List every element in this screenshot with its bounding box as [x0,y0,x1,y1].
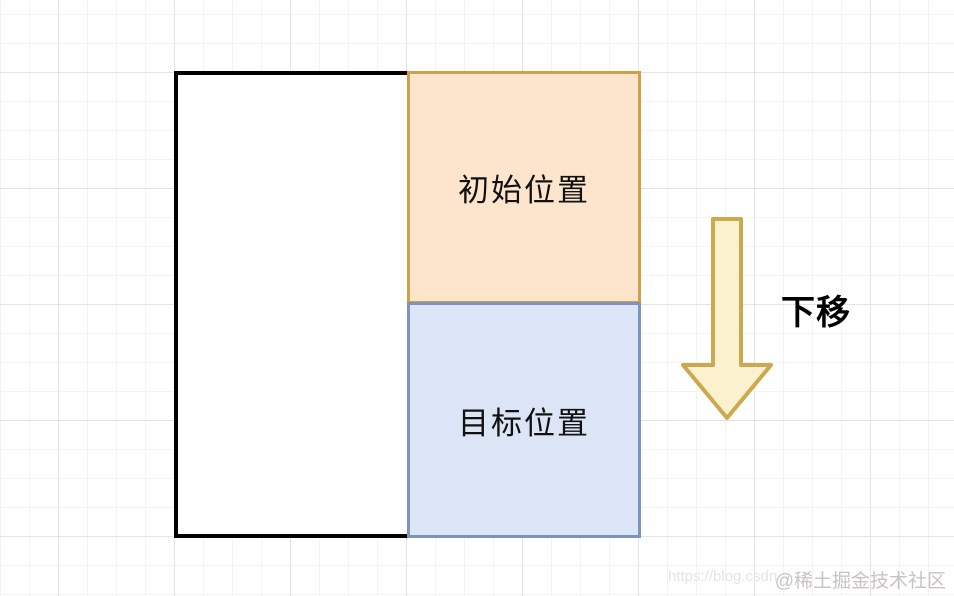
down-arrow-icon [680,216,774,422]
grid-canvas: 初始位置 目标位置 下移 https://blog.csdn @稀土掘金技术社区 [0,0,954,596]
down-arrow-shape [683,219,771,418]
arrow-label: 下移 [781,285,851,334]
target-position-label: 目标位置 [458,398,590,443]
initial-position-label: 初始位置 [458,165,590,210]
initial-position-box: 初始位置 [407,71,641,304]
watermark-url-text: https://blog.csdn [668,568,777,585]
target-position-box: 目标位置 [407,302,641,538]
watermark-community-text: @稀土掘金技术社区 [775,566,946,593]
